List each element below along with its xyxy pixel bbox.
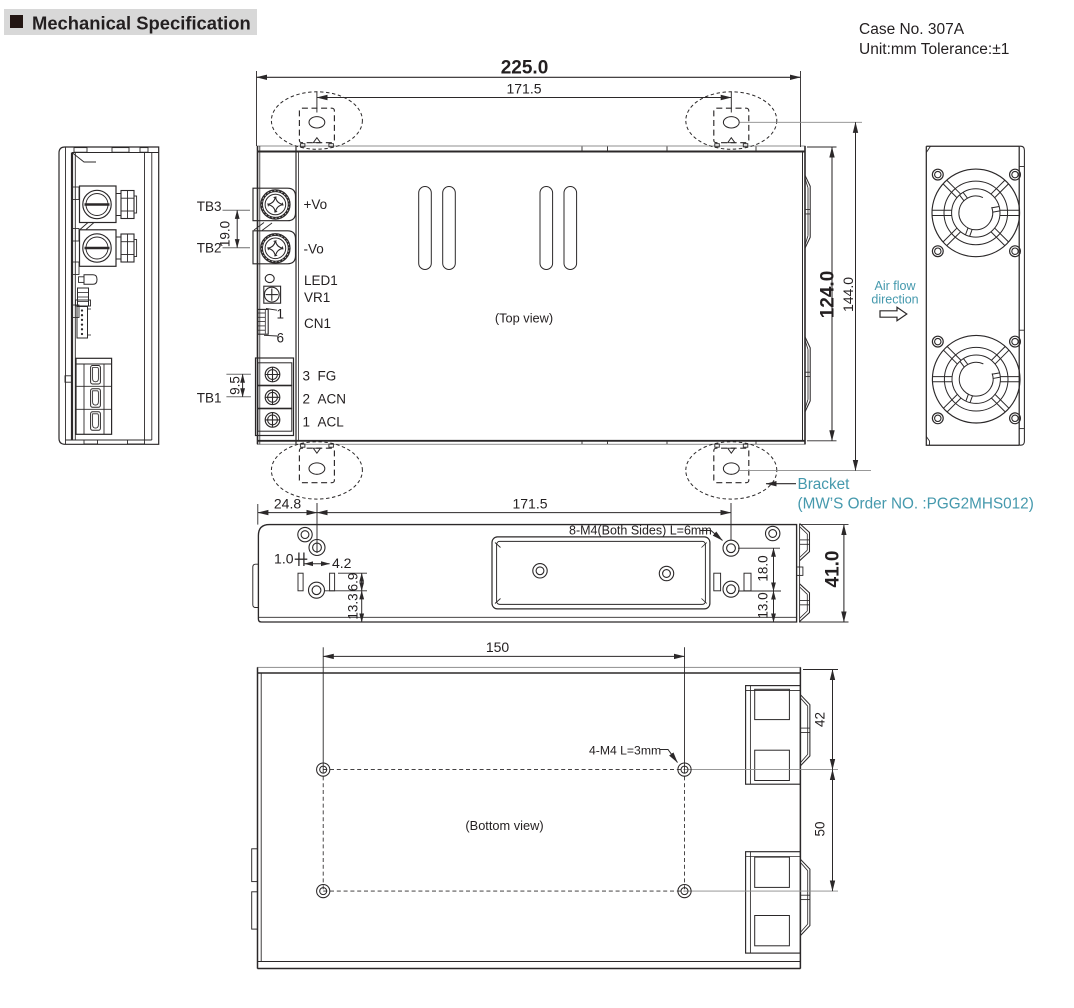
- svg-text:2 ACN: 2 ACN: [303, 392, 347, 407]
- svg-text:144.0: 144.0: [840, 277, 856, 312]
- svg-text:9.5: 9.5: [228, 376, 243, 395]
- svg-text:+Vo: +Vo: [304, 197, 328, 212]
- svg-text:4.2: 4.2: [332, 555, 352, 571]
- svg-text:(Top view): (Top view): [495, 311, 553, 326]
- svg-text:1 ACL: 1 ACL: [303, 415, 345, 430]
- svg-text:LED1: LED1: [304, 273, 338, 288]
- svg-text:Unit:mm Tolerance:±1: Unit:mm Tolerance:±1: [859, 41, 1009, 58]
- svg-text:4-M4 L=3mm: 4-M4 L=3mm: [589, 744, 661, 758]
- svg-text:150: 150: [486, 639, 510, 655]
- svg-text:24.8: 24.8: [274, 496, 301, 512]
- svg-text:41.0: 41.0: [823, 551, 844, 588]
- svg-text:direction: direction: [871, 293, 918, 307]
- svg-text:TB3: TB3: [197, 199, 222, 214]
- svg-text:42: 42: [813, 712, 828, 727]
- svg-text:(Bottom view): (Bottom view): [465, 818, 543, 833]
- svg-text:171.5: 171.5: [512, 496, 547, 512]
- svg-text:124.0: 124.0: [818, 271, 839, 319]
- svg-text:-Vo: -Vo: [304, 241, 324, 256]
- svg-text:8-M4(Both Sides) L=6mm: 8-M4(Both Sides) L=6mm: [569, 524, 712, 538]
- svg-text:VR1: VR1: [304, 290, 330, 305]
- svg-text:6.9: 6.9: [346, 573, 361, 592]
- svg-text:3 FG: 3 FG: [303, 369, 337, 384]
- svg-text:225.0: 225.0: [501, 58, 549, 79]
- svg-text:CN1: CN1: [304, 316, 331, 331]
- svg-text:(MW’S Order NO. :PGG2MHS012): (MW’S Order NO. :PGG2MHS012): [798, 496, 1034, 513]
- svg-text:50: 50: [813, 821, 828, 836]
- svg-text:13.0: 13.0: [756, 592, 771, 618]
- svg-text:TB1: TB1: [197, 390, 222, 405]
- svg-text:1: 1: [277, 307, 285, 322]
- svg-text:6: 6: [277, 331, 285, 346]
- svg-text:19.0: 19.0: [218, 221, 233, 247]
- svg-text:13.3: 13.3: [346, 593, 361, 619]
- svg-text:Case No. 307A: Case No. 307A: [859, 21, 965, 38]
- svg-text:1.0: 1.0: [274, 551, 294, 567]
- svg-text:18.0: 18.0: [756, 555, 771, 581]
- svg-text:171.5: 171.5: [506, 81, 541, 97]
- svg-text:Bracket: Bracket: [798, 476, 851, 493]
- svg-text:Air flow: Air flow: [875, 279, 917, 293]
- svg-text:Mechanical Specification: Mechanical Specification: [32, 13, 251, 34]
